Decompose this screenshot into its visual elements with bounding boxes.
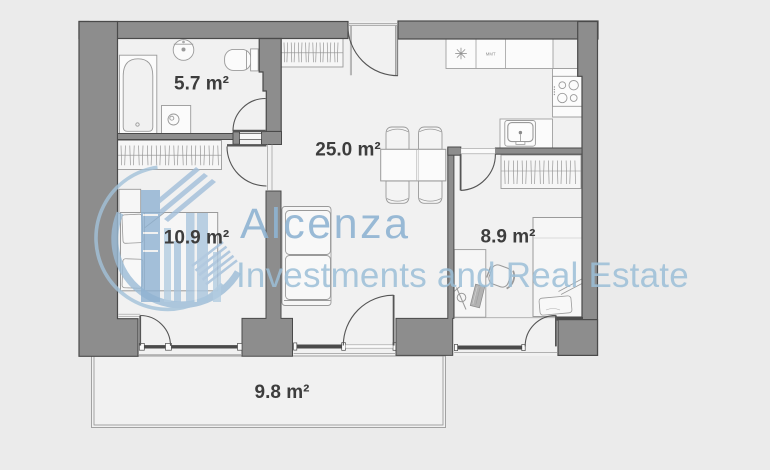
svg-text:10.9 m²: 10.9 m² xyxy=(164,228,229,249)
svg-text:8.9 m²: 8.9 m² xyxy=(481,227,536,248)
svg-text:Investments and Real Estate: Investments and Real Estate xyxy=(236,256,689,295)
svg-text:25.0 m²: 25.0 m² xyxy=(315,140,380,161)
svg-text:MMT: MMT xyxy=(486,52,496,57)
svg-text:5.7 m²: 5.7 m² xyxy=(174,74,229,95)
svg-text:9.8 m²: 9.8 m² xyxy=(255,382,310,403)
svg-text:Alcenza: Alcenza xyxy=(240,200,410,248)
